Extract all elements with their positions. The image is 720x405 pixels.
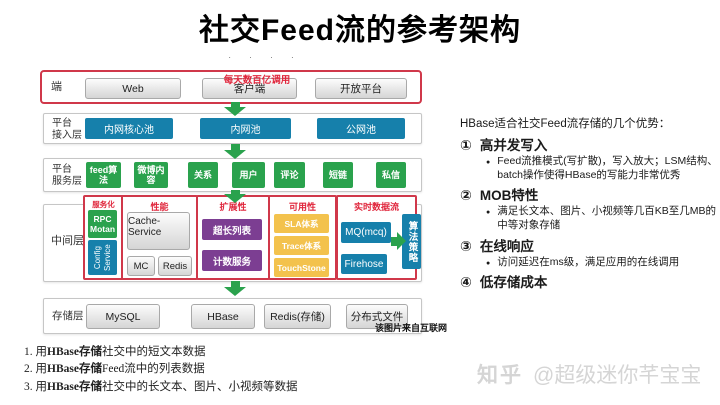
config-service-box: Config Service xyxy=(88,240,117,275)
open-platform-box: 开放平台 xyxy=(315,78,407,99)
hbase-advantages-panel: HBase适合社交Feed流存储的几个优势： ① 高并发写入 ● Feed流推模… xyxy=(460,115,718,291)
note-bold: HBase存储 xyxy=(47,363,102,375)
circled-number: ③ xyxy=(460,238,472,255)
arrow-right-icon xyxy=(391,232,406,250)
touchstone-box: TouchStone xyxy=(274,258,329,277)
trace-system-box: Trace体系 xyxy=(274,236,329,255)
arrow-down-icon xyxy=(224,102,246,116)
public-pool-box: 公网池 xyxy=(317,118,405,139)
note-prefix: 1. 用 xyxy=(24,346,47,358)
arrow-head xyxy=(224,287,246,296)
service-layer-row: 平台 服务层 feed算法 微博内容 关系 用户 评论 短链 私信 xyxy=(43,158,422,192)
image-source-note: 该图片来自互联网 xyxy=(335,321,447,334)
note-rest: Feed流中的列表数据 xyxy=(102,363,205,375)
advantage-detail-text: 访问延迟在ms级，满足应用的在线调用 xyxy=(497,256,679,270)
availability-column: 可用性 SLA体系 Trace体系 TouchStone xyxy=(268,195,337,280)
circled-number: ① xyxy=(460,137,472,154)
config-line1: Config xyxy=(93,244,103,271)
advantage-detail-text: Feed流推模式(写扩散)，写入放大；LSM结构、batch操作使得HBase的… xyxy=(497,155,718,182)
advantage-detail-text: 满足长文本、图片、小视频等几百KB至几MB的中等对象存储 xyxy=(497,205,718,232)
arrow-down-icon xyxy=(224,190,246,203)
usage-note-line: 2. 用HBase存储Feed流中的列表数据 xyxy=(24,361,297,378)
mc-box: MC xyxy=(127,256,155,276)
access-layer-label: 平台 接入层 xyxy=(52,118,82,141)
firehose-box: Firehose xyxy=(341,254,387,274)
page-title: 社交Feed流的参考架构 xyxy=(0,5,720,49)
arrow-down-icon xyxy=(224,144,246,159)
access-layer-label-line1: 平台 xyxy=(52,118,72,129)
note-prefix: 3. 用 xyxy=(24,381,47,393)
redis-box: Redis xyxy=(158,256,192,276)
mysql-box: MySQL xyxy=(86,304,160,329)
client-layer-row: 端 Web 客户端 开放平台 每天数百亿调用 xyxy=(40,70,422,104)
mq-box: MQ(mcq) xyxy=(341,222,391,243)
crop-artifact: · · · · xyxy=(190,53,340,62)
arrow-head xyxy=(224,107,246,116)
counter-service-box: 计数服务 xyxy=(202,250,262,271)
advantage-title: MOB特性 xyxy=(480,184,539,204)
redis-storage-box: Redis(存储) xyxy=(264,304,331,329)
scalability-column: 扩展性 超长列表 计数服务 xyxy=(196,195,270,280)
availability-title: 可用性 xyxy=(270,200,335,213)
rpc-motan-box: RPC Motan xyxy=(88,210,117,238)
weibo-content-box: 微博内容 xyxy=(134,162,168,188)
advantage-detail: ● 访问延迟在ms级，满足应用的在线调用 xyxy=(486,256,718,270)
access-layer-row: 平台 接入层 内网核心池 内网池 公网池 xyxy=(43,113,422,144)
config-service-label: Config Service xyxy=(93,244,112,271)
shortlink-box: 短链 xyxy=(323,162,353,188)
advantage-item: ② MOB特性 xyxy=(460,184,718,204)
servicization-column: 服务化 RPC Motan Config Service xyxy=(83,195,124,280)
servicization-title: 服务化 xyxy=(85,199,122,210)
long-list-box: 超长列表 xyxy=(202,219,262,240)
zhihu-logo: 知乎 xyxy=(477,364,523,387)
private-message-box: 私信 xyxy=(376,162,406,188)
architecture-diagram: · · · · 端 Web 客户端 开放平台 每天数百亿调用 平台 接入层 内网… xyxy=(35,58,459,340)
relation-box: 关系 xyxy=(188,162,218,188)
advantage-title: 高并发写入 xyxy=(480,134,548,154)
intranet-core-pool-box: 内网核心池 xyxy=(85,118,173,139)
advantage-item: ③ 在线响应 xyxy=(460,235,718,255)
user-box: 用户 xyxy=(232,162,265,188)
advantage-item: ④ 低存储成本 xyxy=(460,271,718,291)
service-layer-label-line1: 平台 xyxy=(52,164,72,175)
intranet-pool-box: 内网池 xyxy=(200,118,291,139)
arrow-head xyxy=(397,232,406,250)
realtime-stream-title: 实时数据流 xyxy=(338,200,415,213)
advantage-detail: ● 满足长文本、图片、小视频等几百KB至几MB的中等对象存储 xyxy=(486,205,718,232)
arrow-down-icon xyxy=(224,281,246,296)
storage-layer-label: 存储层 xyxy=(52,310,84,322)
note-prefix: 2. 用 xyxy=(24,363,47,375)
advantage-detail: ● Feed流推模式(写扩散)，写入放大；LSM结构、batch操作使得HBas… xyxy=(486,155,718,182)
daily-calls-annotation: 每天数百亿调用 xyxy=(192,72,322,86)
circled-number: ④ xyxy=(460,274,472,291)
service-layer-label-line2: 服务层 xyxy=(52,176,82,187)
bullet-icon: ● xyxy=(486,259,490,270)
usage-note-line: 1. 用HBase存储社交中的短文本数据 xyxy=(24,344,297,361)
advantages-heading: HBase适合社交Feed流存储的几个优势： xyxy=(460,115,718,131)
realtime-stream-column: 实时数据流 MQ(mcq) Firehose 算法策略 xyxy=(336,195,417,280)
watermark: 知乎@超级迷你芊宝宝 xyxy=(477,359,701,389)
arrow-head xyxy=(224,194,246,203)
usage-notes: 1. 用HBase存储社交中的短文本数据 2. 用HBase存储Feed流中的列… xyxy=(24,344,297,396)
bullet-icon: ● xyxy=(486,158,490,182)
hbase-box: HBase xyxy=(191,304,255,329)
advantage-title: 在线响应 xyxy=(480,235,534,255)
watermark-handle: @超级迷你芊宝宝 xyxy=(533,364,701,387)
note-bold: HBase存储 xyxy=(47,346,102,358)
note-bold: HBase存储 xyxy=(47,381,102,393)
performance-column: 性能 Cache-Service MC Redis xyxy=(121,195,198,280)
cache-service-box: Cache-Service xyxy=(127,212,190,250)
note-rest: 社交中的长文本、图片、小视频等数据 xyxy=(102,381,298,393)
feed-algorithm-box: feed算法 xyxy=(86,162,121,188)
client-layer-label: 端 xyxy=(51,81,62,94)
middle-layer-label: 中间层 xyxy=(51,235,84,248)
arrow-head xyxy=(224,150,246,159)
bullet-icon: ● xyxy=(486,208,490,232)
web-box: Web xyxy=(85,78,181,99)
usage-note-line: 3. 用HBase存储社交中的长文本、图片、小视频等数据 xyxy=(24,379,297,396)
sla-system-box: SLA体系 xyxy=(274,214,329,233)
config-line2: Service xyxy=(103,244,113,271)
comment-box: 评论 xyxy=(274,162,305,188)
service-layer-label: 平台 服务层 xyxy=(52,164,82,187)
advantage-title: 低存储成本 xyxy=(480,271,548,291)
circled-number: ② xyxy=(460,187,472,204)
advantage-item: ① 高并发写入 xyxy=(460,134,718,154)
access-layer-label-line2: 接入层 xyxy=(52,130,82,141)
note-rest: 社交中的短文本数据 xyxy=(102,346,206,358)
